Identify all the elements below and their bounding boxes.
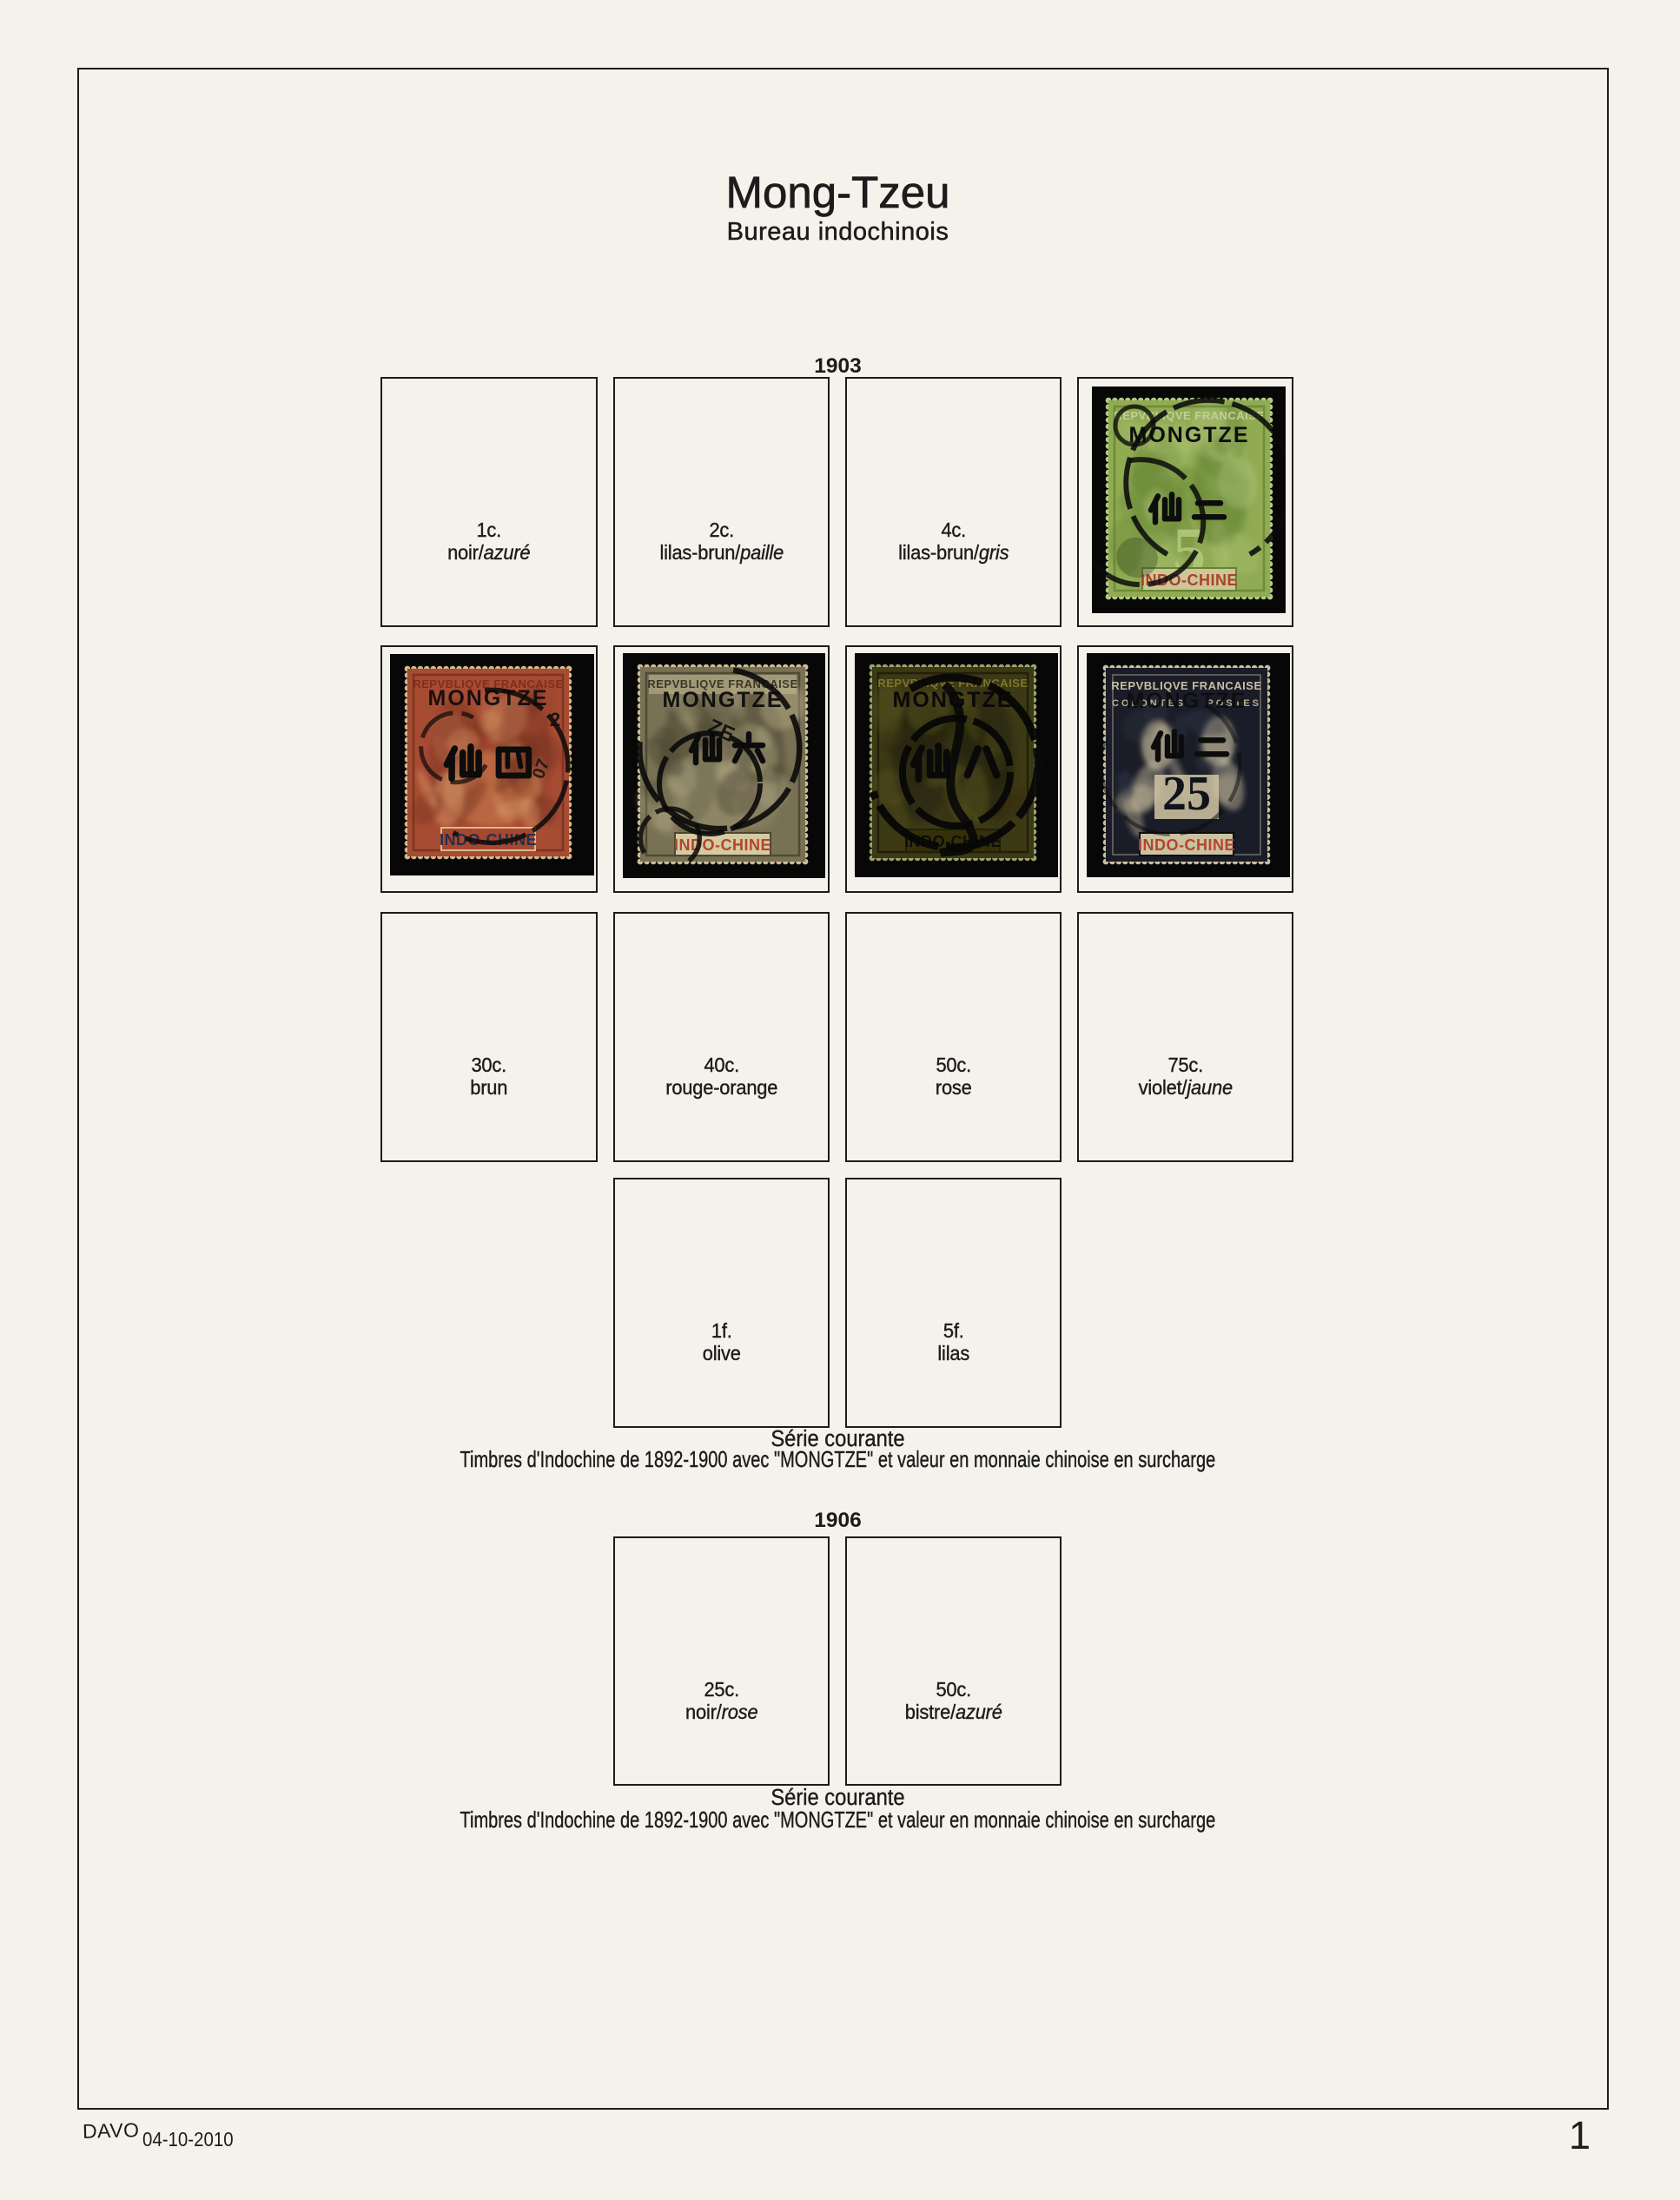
svg-text:MONGTZE: MONGTZE [1127,689,1247,713]
svg-text:MONGTZE: MONGTZE [663,688,784,712]
svg-text:INDO-CHINE: INDO-CHINE [1138,836,1235,854]
svg-text:25: 25 [1162,767,1211,821]
svg-text:INDO-CHINE: INDO-CHINE [674,836,771,854]
svg-text:2: 2 [550,709,560,730]
